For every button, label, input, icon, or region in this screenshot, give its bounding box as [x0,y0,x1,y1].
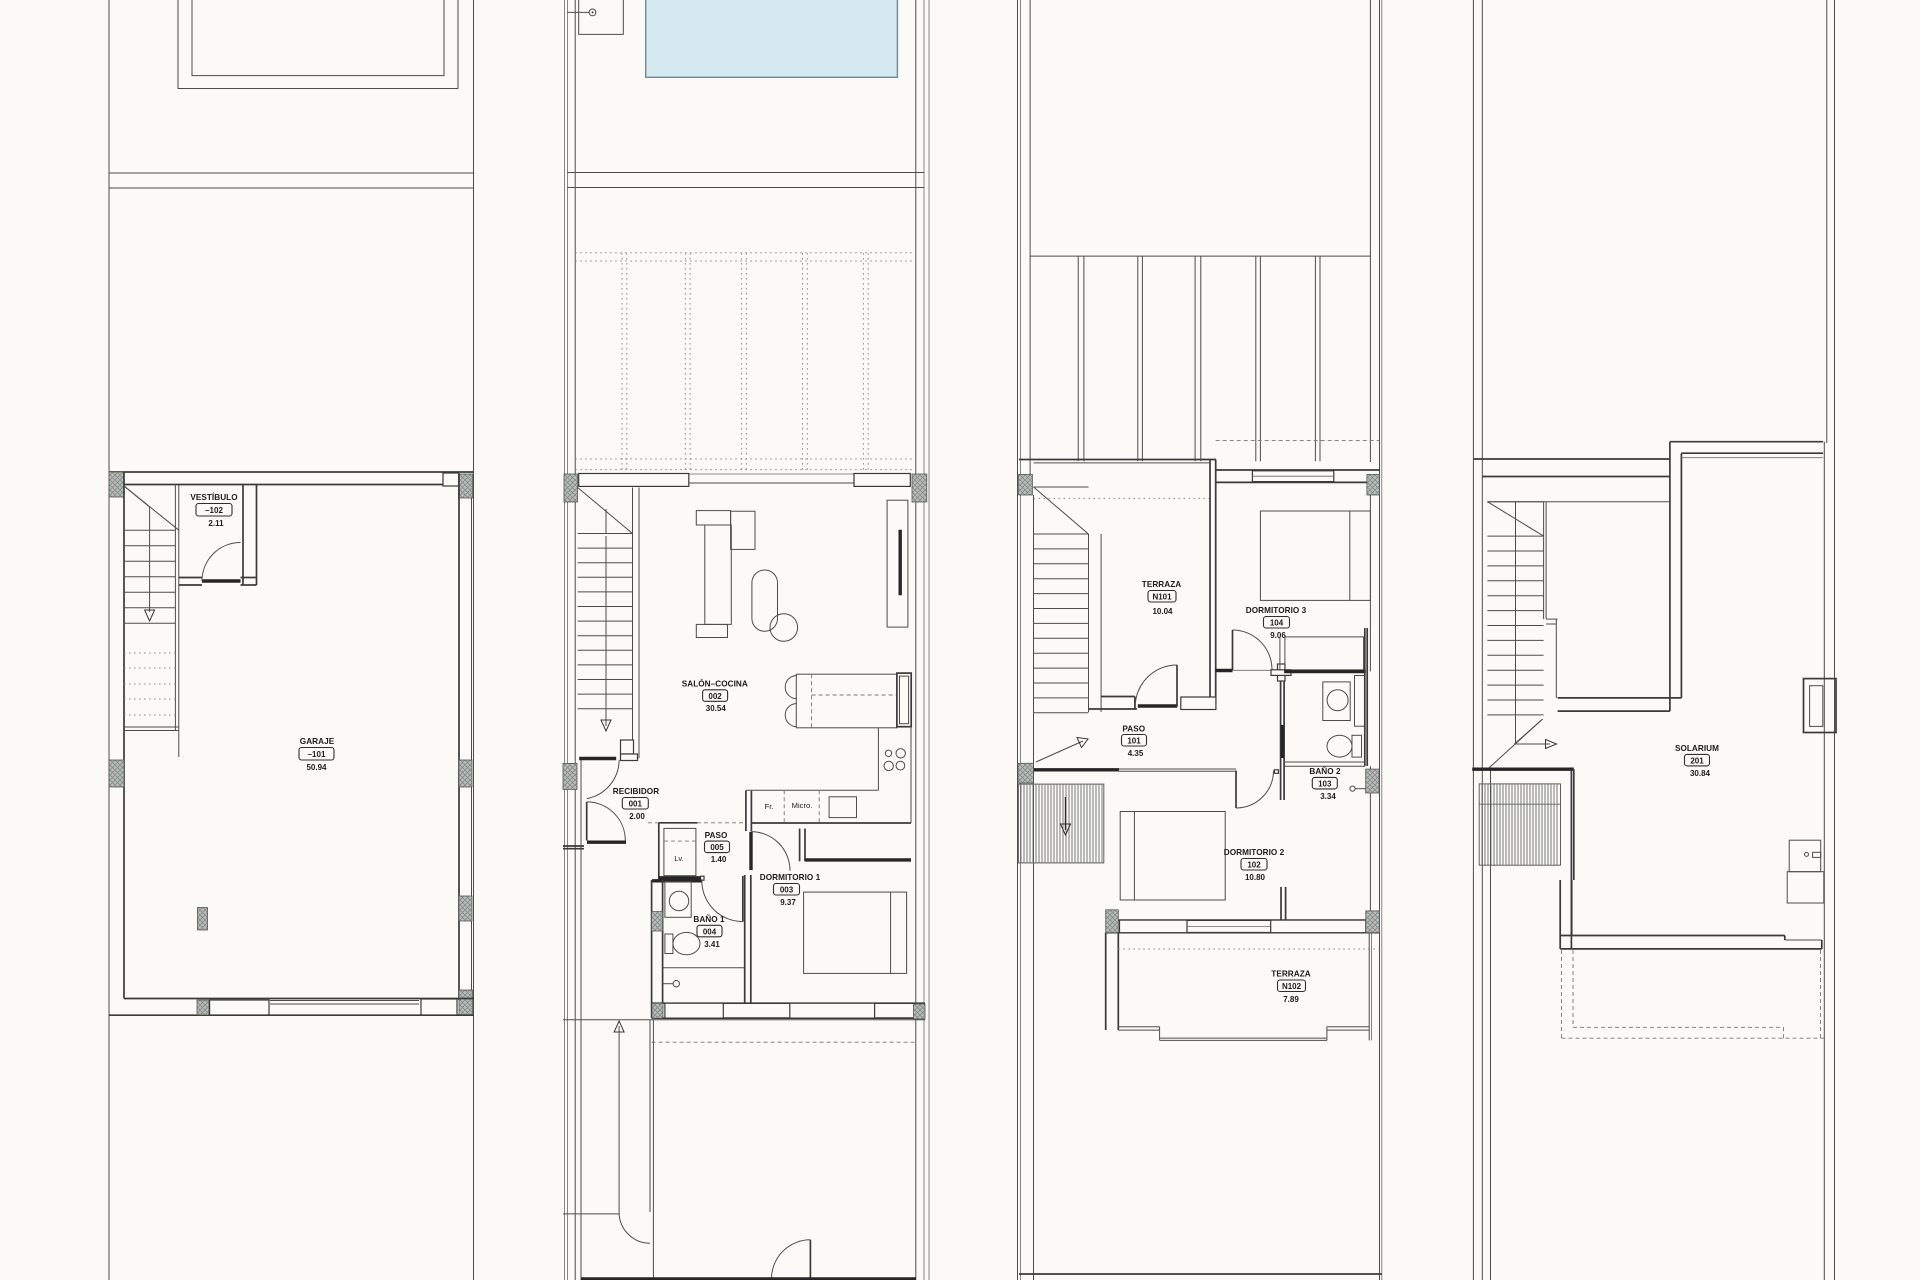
svg-text:3.34: 3.34 [1320,792,1336,801]
svg-text:PASO: PASO [705,831,728,840]
svg-text:10.04: 10.04 [1152,607,1173,616]
svg-text:DORMITORIO 2: DORMITORIO 2 [1224,848,1285,857]
svg-text:BAÑO 1: BAÑO 1 [693,914,725,924]
svg-text:TERRAZA: TERRAZA [1271,970,1311,979]
svg-text:104: 104 [1270,619,1284,628]
svg-text:7.89: 7.89 [1283,995,1299,1004]
svg-text:001: 001 [629,800,643,809]
svg-text:4.35: 4.35 [1128,749,1144,758]
svg-text:–101: –101 [308,750,326,759]
svg-text:PASO: PASO [1122,725,1145,734]
svg-text:003: 003 [780,886,794,895]
svg-text:2.00: 2.00 [629,812,645,821]
svg-text:Micro.: Micro. [792,801,813,810]
svg-text:30.84: 30.84 [1690,769,1711,778]
svg-text:002: 002 [708,692,722,701]
svg-text:Fr.: Fr. [765,802,774,811]
svg-text:BAÑO 2: BAÑO 2 [1309,766,1341,776]
svg-text:RECIBIDOR: RECIBIDOR [613,787,659,796]
svg-text:10.80: 10.80 [1245,873,1266,882]
svg-text:N101: N101 [1152,593,1172,602]
svg-text:1.40: 1.40 [711,855,727,864]
svg-text:GARAJE: GARAJE [300,737,335,746]
svg-text:TERRAZA: TERRAZA [1142,580,1182,589]
svg-text:005: 005 [710,843,724,852]
svg-text:N102: N102 [1282,982,1302,991]
svg-text:SALÓN–COCINA: SALÓN–COCINA [682,678,748,689]
svg-text:30.54: 30.54 [706,704,727,713]
svg-text:Lv.: Lv. [674,854,684,863]
svg-text:50.94: 50.94 [306,763,327,772]
svg-text:–102: –102 [205,506,223,515]
svg-text:103: 103 [1318,779,1332,788]
svg-text:101: 101 [1127,737,1141,746]
svg-text:9.37: 9.37 [780,898,796,907]
svg-text:9.06: 9.06 [1270,631,1286,640]
svg-text:DORMITORIO 3: DORMITORIO 3 [1246,606,1307,615]
svg-text:102: 102 [1247,861,1261,870]
svg-text:201: 201 [1690,756,1704,765]
svg-text:004: 004 [703,927,717,936]
svg-text:2.11: 2.11 [208,519,224,528]
svg-text:VESTÍBULO: VESTÍBULO [190,492,238,502]
svg-text:3.41: 3.41 [704,940,720,949]
svg-text:SOLARIUM: SOLARIUM [1675,744,1719,753]
svg-text:DORMITORIO 1: DORMITORIO 1 [760,873,821,882]
